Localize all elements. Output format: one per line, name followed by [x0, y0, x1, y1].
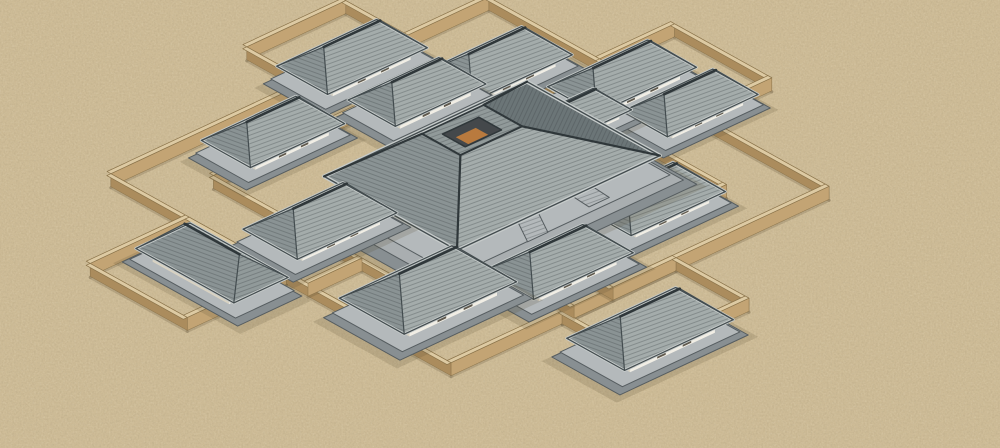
- scene-canvas: [0, 0, 1000, 448]
- model-viewport: 3D model render of a symmetric ancient C…: [0, 0, 1000, 448]
